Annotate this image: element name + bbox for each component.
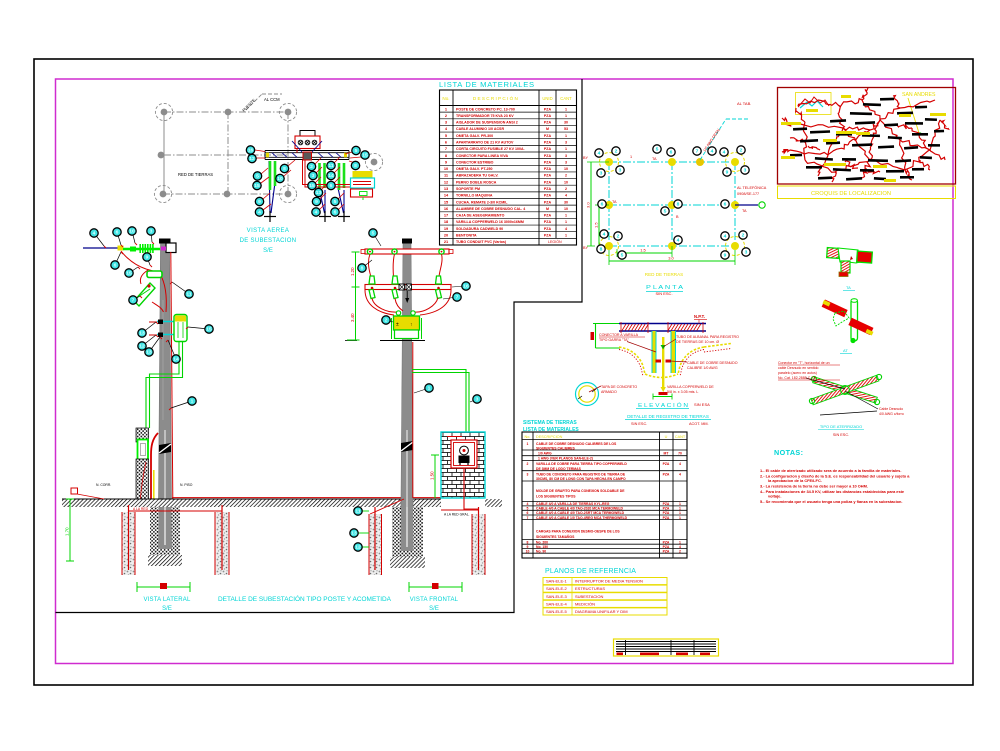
- svg-text:PZA: PZA: [544, 220, 552, 224]
- svg-text:8: 8: [354, 163, 357, 169]
- svg-text:TUBO CONDUIT PVC (Varios): TUBO CONDUIT PVC (Varios): [456, 240, 507, 244]
- svg-text:1.5: 1.5: [640, 248, 646, 253]
- svg-text:1: 1: [565, 114, 567, 118]
- svg-text:SIN ESC.: SIN ESC.: [833, 433, 849, 437]
- svg-text:1: 1: [630, 155, 632, 159]
- svg-text:30: 30: [564, 121, 568, 125]
- svg-text:3.40: 3.40: [350, 313, 355, 322]
- svg-text:7: 7: [445, 146, 447, 151]
- svg-text:2: 2: [742, 233, 745, 239]
- svg-text:TA: TA: [652, 157, 657, 161]
- svg-text:14: 14: [328, 173, 334, 179]
- svg-text:CABLE 4/0 A CABLE 1/0 TAO-4REG: CABLE 4/0 A CABLE 1/0 TAO-4REG MCA THERM…: [536, 516, 628, 520]
- svg-text:S/E: S/E: [429, 606, 439, 612]
- svg-text:ACOT. MM.: ACOT. MM.: [689, 422, 709, 426]
- svg-text:PZA: PZA: [544, 174, 552, 178]
- svg-text:No.: No.: [525, 435, 531, 439]
- svg-text:5: 5: [527, 507, 529, 511]
- svg-text:2: 2: [565, 174, 567, 178]
- svg-text:PZA: PZA: [544, 180, 552, 184]
- svg-text:4: 4: [723, 150, 726, 156]
- svg-text:AL TAB.: AL TAB.: [737, 101, 751, 106]
- svg-text:POSTE DE CONCRETO PC. 13-700: POSTE DE CONCRETO PC. 13-700: [456, 107, 515, 111]
- svg-text:4: 4: [603, 232, 606, 238]
- svg-text:2: 2: [527, 462, 529, 466]
- svg-text:10: 10: [564, 167, 568, 171]
- svg-text:PZA: PZA: [663, 516, 670, 520]
- svg-text:No. Cat. 182-2888-C-TB: No. Cat. 182-2888-C-TB: [778, 376, 817, 380]
- svg-text:TORNILLO MAQUINA: TORNILLO MAQUINA: [456, 194, 493, 198]
- svg-text:AISLADOR DE SUSPENSION ANSI 2: AISLADOR DE SUSPENSION ANSI 2: [456, 121, 518, 125]
- svg-text:2: 2: [679, 549, 681, 553]
- svg-text:paralelo (acero en autos): paralelo (acero en autos): [778, 371, 817, 375]
- svg-text:±: ±: [396, 322, 399, 328]
- svg-text:1.5: 1.5: [594, 222, 599, 228]
- svg-text:6: 6: [724, 202, 727, 208]
- svg-text:12: 12: [355, 545, 361, 551]
- svg-text:16: 16: [463, 284, 469, 290]
- svg-text:1 AWG (VER PLANOS SAN-EL: 1 AWG (VER PLANOS SAN-ELE-2): [538, 457, 593, 461]
- svg-text:15: 15: [362, 153, 368, 159]
- svg-text:OMETA GALV. PT-250: OMETA GALV. PT-250: [456, 167, 493, 171]
- svg-text:15: 15: [206, 327, 212, 333]
- svg-text:PZA: PZA: [663, 472, 670, 476]
- svg-text:DE TIERRAS DE 10 cm. Ø: DE TIERRAS DE 10 cm. Ø: [676, 340, 719, 344]
- svg-text:8: 8: [677, 202, 680, 208]
- svg-text:DIAGRAMA UNIFILAR Y DIM: DIAGRAMA UNIFILAR Y DIM: [575, 609, 628, 614]
- svg-text:13: 13: [316, 190, 322, 196]
- svg-text:TA: TA: [612, 200, 617, 204]
- svg-text:PZA: PZA: [544, 234, 552, 238]
- svg-text:2: 2: [385, 318, 388, 324]
- svg-text:1.20: 1.20: [350, 267, 355, 276]
- svg-text:9: 9: [726, 170, 729, 176]
- svg-text:1/0 AWG: 1/0 AWG: [538, 452, 552, 456]
- svg-text:PZA: PZA: [663, 549, 670, 553]
- svg-text:SIN ESA: SIN ESA: [694, 402, 710, 407]
- svg-text:30CMS, 80 CM DE LONG CON TAPA: 30CMS, 80 CM DE LONG CON TAPA HECHA EN C…: [536, 477, 626, 481]
- svg-text:3: 3: [312, 173, 315, 179]
- svg-text:CABLE 4/0 A CABLE 4/0 TAO-2020: CABLE 4/0 A CABLE 4/0 TAO-2020 MCA TERMO…: [536, 507, 624, 511]
- svg-text:TA: TA: [846, 285, 851, 290]
- svg-text:OMETA GALV. PR-300: OMETA GALV. PR-300: [456, 134, 493, 138]
- svg-text:13: 13: [139, 331, 145, 337]
- svg-text:5: 5: [664, 209, 667, 215]
- svg-text:SIGUIENTES TAMAÑOS: SIGUIENTES TAMAÑOS: [536, 534, 575, 539]
- svg-text:PZA: PZA: [544, 121, 552, 125]
- svg-text:VISTA FRONTAL: VISTA FRONTAL: [410, 597, 459, 603]
- svg-text:NOTAS:: NOTAS:: [774, 448, 803, 457]
- svg-text:2: 2: [615, 149, 618, 155]
- svg-text:4: 4: [677, 238, 680, 244]
- svg-text:70: 70: [678, 452, 682, 456]
- svg-text:2: 2: [310, 164, 313, 170]
- svg-text:MEDICIÓN: MEDICIÓN: [575, 601, 595, 606]
- svg-text:1: 1: [679, 507, 681, 511]
- svg-text:10: 10: [564, 207, 568, 211]
- svg-text:4.- Para instalaciones de: 4.- Para instalaciones de 34.5 KV, utili…: [760, 489, 905, 494]
- svg-text:4: 4: [258, 210, 261, 216]
- svg-text:1: 1: [679, 511, 681, 515]
- svg-text:PZA: PZA: [663, 511, 670, 515]
- svg-text:1: 1: [527, 442, 529, 446]
- svg-text:CARGAS PARA CONEXION DESMO-OES: CARGAS PARA CONEXION DESMO-OESPE DE LOS: [536, 530, 620, 534]
- svg-text:8: 8: [361, 266, 364, 272]
- svg-text:No.: No.: [442, 96, 449, 101]
- svg-text:TAPA DE CONCRETO: TAPA DE CONCRETO: [601, 385, 637, 389]
- svg-text:PZA: PZA: [544, 114, 552, 118]
- svg-text:4: 4: [565, 194, 567, 198]
- svg-text:Conector en "T", horizontal de: Conector en "T", horizontal de un: [778, 361, 830, 365]
- svg-text:ABRAZADERA TU GALV.: ABRAZADERA TU GALV.: [456, 174, 498, 178]
- svg-text:6: 6: [527, 511, 529, 515]
- svg-text:MOLDE DE GRAFITO PARA CONEXION: MOLDE DE GRAFITO PARA CONEXION SOLDABLE …: [536, 489, 625, 493]
- svg-text:CONECTOR ESTRIBO: CONECTOR ESTRIBO: [456, 160, 494, 164]
- svg-text:RED DE TIERRAS: RED DE TIERRAS: [645, 272, 683, 277]
- svg-text:CUCHA. REMATE 2-3/0 KCMIL: CUCHA. REMATE 2-3/0 KCMIL: [456, 200, 508, 204]
- svg-text:S/E: S/E: [263, 248, 273, 254]
- svg-text:No. 90: No. 90: [536, 549, 546, 553]
- svg-text:5.- Se recomienda que el: 5.- Se recomienda que el usuario tenga u…: [760, 499, 902, 504]
- svg-text:DESCRIPCION: DESCRIPCION: [536, 435, 563, 439]
- svg-text:1: 1: [679, 502, 681, 506]
- svg-text:7: 7: [456, 295, 459, 301]
- svg-text:3: 3: [150, 229, 153, 235]
- svg-text:1: 1: [565, 234, 567, 238]
- svg-text:CROQUIS DE LOCALIZACION: CROQUIS DE LOCALIZACION: [811, 191, 891, 197]
- svg-text:TRANSFORMADOR 75 KVA 23 KV: TRANSFORMADOR 75 KVA 23 KV: [456, 114, 514, 118]
- svg-text:APARTARRAYO DE 21 KV AUTOV: APARTARRAYO DE 21 KV AUTOV: [456, 141, 514, 145]
- svg-text:4: 4: [527, 502, 529, 506]
- svg-text:1: 1: [565, 220, 567, 224]
- svg-text:5: 5: [334, 199, 337, 205]
- svg-text:4: 4: [315, 210, 318, 216]
- svg-text:↑: ↑: [410, 322, 413, 328]
- svg-text:CANT: CANT: [560, 96, 572, 101]
- svg-text:PZA: PZA: [544, 147, 552, 151]
- svg-text:5: 5: [656, 147, 659, 153]
- svg-text:3: 3: [565, 154, 567, 158]
- svg-text:CABLE 4/0 A CABLE 4/0 TAO-2SRT: CABLE 4/0 A CABLE 4/0 TAO-2SRT MCA TERMO…: [536, 511, 625, 515]
- svg-text:PZA: PZA: [544, 227, 552, 231]
- svg-text:10: 10: [277, 176, 283, 182]
- svg-text:PZA: PZA: [544, 214, 552, 218]
- svg-text:6: 6: [670, 150, 673, 156]
- svg-text:4: 4: [565, 227, 567, 231]
- svg-text:PZA: PZA: [544, 167, 552, 171]
- svg-text:RED DE TIERRAS: RED DE TIERRAS: [178, 172, 213, 177]
- svg-text:BENTONITA: BENTONITA: [456, 234, 477, 238]
- svg-text:1: 1: [565, 134, 567, 138]
- svg-text:10: 10: [444, 166, 448, 171]
- svg-text:PZA: PZA: [663, 545, 670, 549]
- svg-text:PZA: PZA: [544, 154, 552, 158]
- svg-text:6: 6: [114, 263, 117, 269]
- svg-text:4: 4: [679, 462, 681, 466]
- svg-text:7: 7: [527, 516, 529, 520]
- svg-text:10: 10: [526, 549, 530, 553]
- svg-text:DESCRIPCIÓN: DESCRIPCIÓN: [473, 95, 519, 101]
- svg-text:VARILLA DE COBRE PARA TIERRA T: VARILLA DE COBRE PARA TIERRA TIPO COPPER…: [536, 462, 627, 466]
- svg-text:PZA: PZA: [544, 194, 552, 198]
- svg-text:8: 8: [283, 166, 286, 172]
- svg-text:E L E V A C I Ó N: E L E V A C I Ó N: [638, 402, 688, 409]
- svg-text:CORTA CIRCUITO FUSIBLE 27 KV 1: CORTA CIRCUITO FUSIBLE 27 KV 100A.: [456, 147, 525, 151]
- svg-text:3.- La resistencia de la: 3.- La resistencia de la tierra no debe …: [760, 484, 868, 489]
- svg-text:Cable Desnudo: Cable Desnudo: [879, 407, 903, 411]
- svg-text:3: 3: [476, 397, 479, 403]
- svg-text:13: 13: [351, 531, 357, 537]
- svg-text:LOS SIGUIENTES TIPOS: LOS SIGUIENTES TIPOS: [536, 494, 576, 498]
- svg-text:3.0: 3.0: [668, 256, 674, 261]
- svg-text:CABLE 4/0 A VARILLA DE TIERRAS: CABLE 4/0 A VARILLA DE TIERRAS KYL-REG: [536, 502, 610, 506]
- svg-text:12: 12: [249, 156, 255, 162]
- svg-text:SIGUIENTES CALIBRES: SIGUIENTES CALIBRES: [536, 447, 576, 451]
- svg-text:9: 9: [724, 253, 727, 259]
- svg-text:SUBESTACION: SUBESTACION: [575, 594, 603, 599]
- svg-text:PZA: PZA: [544, 107, 552, 111]
- svg-text:9: 9: [258, 199, 261, 205]
- svg-text:A LA RED: A LA RED: [133, 507, 149, 511]
- svg-text:PZA: PZA: [544, 141, 552, 145]
- svg-text:BY: BY: [583, 246, 589, 250]
- svg-text:CAJA DE ASEGURAMIENTO: CAJA DE ASEGURAMIENTO: [456, 214, 505, 218]
- svg-text:voltaje.: voltaje.: [768, 494, 781, 499]
- svg-text:SAN-ELE-5: SAN-ELE-5: [546, 609, 567, 614]
- svg-text:1: 1: [565, 107, 567, 111]
- svg-text:4: 4: [711, 149, 714, 155]
- svg-text:SAN-ELE-4: SAN-ELE-4: [546, 601, 567, 606]
- svg-text:6: 6: [334, 210, 337, 216]
- svg-text:3.0: 3.0: [586, 202, 591, 208]
- svg-text:No. 200: No. 200: [536, 540, 548, 544]
- svg-text:CANT: CANT: [675, 435, 686, 439]
- svg-text:16: 16: [248, 148, 254, 154]
- svg-text:INTERRUPTOR DE MEDIA TENSIO: INTERRUPTOR DE MEDIA TENSION: [575, 579, 643, 584]
- svg-text:AT: AT: [843, 348, 848, 353]
- svg-text:1.- El cable de aterrizado: 1.- El cable de aterrizado utilizado ser…: [760, 468, 901, 473]
- svg-text:10: 10: [564, 180, 568, 184]
- svg-text:13: 13: [146, 350, 152, 356]
- svg-text:N. PISO: N. PISO: [180, 483, 193, 487]
- svg-text:LISTA DE MATERIALES: LISTA DE MATERIALES: [439, 80, 535, 89]
- svg-text:53: 53: [564, 127, 568, 131]
- svg-text:AL CCM: AL CCM: [264, 97, 280, 102]
- svg-text:SOLDADURA CADWELD 90: SOLDADURA CADWELD 90: [456, 227, 503, 231]
- svg-text:1.50: 1.50: [430, 471, 435, 480]
- svg-text:2: 2: [565, 187, 567, 191]
- svg-text:12: 12: [139, 344, 145, 350]
- svg-text:VISTA AEREA: VISTA AEREA: [247, 228, 290, 234]
- svg-text:4: 4: [724, 234, 727, 240]
- svg-text:2: 2: [617, 234, 620, 240]
- svg-text:TA: TA: [742, 209, 747, 213]
- svg-text:6: 6: [116, 230, 119, 236]
- svg-text:9: 9: [315, 199, 318, 205]
- svg-text:11: 11: [186, 292, 191, 298]
- svg-text:la aprobacion de la CFE/LF: la aprobacion de la CFE/LFC.: [768, 478, 822, 483]
- svg-text:cable Desnudo en sentido: cable Desnudo en sentido: [778, 366, 819, 370]
- svg-text:PZA: PZA: [544, 160, 552, 164]
- svg-text:5: 5: [256, 174, 259, 180]
- svg-text:CALIBRE 1/0 AWG: CALIBRE 1/0 AWG: [687, 366, 718, 370]
- svg-text:11: 11: [355, 509, 360, 515]
- svg-text:ARMADO: ARMADO: [601, 390, 617, 394]
- svg-text:3: 3: [565, 141, 567, 145]
- svg-text:U: U: [665, 435, 668, 439]
- svg-text:CONECTOR PARA LINEA VIVA: CONECTOR PARA LINEA VIVA: [456, 154, 508, 158]
- svg-text:7: 7: [696, 149, 699, 155]
- svg-text:7: 7: [132, 298, 135, 304]
- svg-text:PZA: PZA: [663, 502, 670, 506]
- svg-text:4: 4: [598, 151, 601, 157]
- svg-text:15: 15: [309, 183, 315, 189]
- svg-text:AL TELEFÓNICA: AL TELEFÓNICA: [737, 185, 767, 190]
- svg-text:4: 4: [679, 545, 681, 549]
- svg-text:ALAMBRE DE COBRE DESNUDO CAL.: ALAMBRE DE COBRE DESNUDO CAL. 4: [456, 207, 525, 211]
- svg-text:PZA: PZA: [544, 187, 552, 191]
- svg-text:CABLE DE COBRE DESNUDO: CABLE DE COBRE DESNUDO: [687, 361, 738, 365]
- svg-text:3: 3: [565, 160, 567, 164]
- svg-text:M: M: [546, 127, 549, 131]
- svg-text:30: 30: [564, 200, 568, 204]
- svg-text:0908/SE-177: 0908/SE-177: [737, 192, 759, 196]
- svg-text:15: 15: [254, 183, 260, 189]
- svg-text:PZA: PZA: [544, 200, 552, 204]
- svg-text:11: 11: [328, 163, 333, 169]
- svg-text:3: 3: [619, 168, 622, 174]
- svg-text:SISTEMA DE TIERRAS: SISTEMA DE TIERRAS: [523, 420, 577, 426]
- svg-text:CONECTOR A VARILLA: CONECTOR A VARILLA: [599, 333, 639, 337]
- svg-text:1.70: 1.70: [65, 527, 70, 536]
- svg-text:8: 8: [527, 540, 529, 544]
- svg-text:20: 20: [444, 233, 448, 238]
- svg-text:1: 1: [679, 540, 681, 544]
- svg-text:4/0 AWG c/forro: 4/0 AWG c/forro: [879, 412, 904, 416]
- svg-text:N. CORR.: N. CORR.: [96, 483, 111, 487]
- svg-text:TUBO DE CONCRETO PARA REGISTRO: TUBO DE CONCRETO PARA REGISTRO DE TIERRA…: [536, 472, 626, 476]
- svg-text:DE 3MM DE LODO TERMAS: DE 3MM DE LODO TERMAS: [536, 467, 582, 471]
- svg-text:SIN ESC.: SIN ESC.: [631, 422, 647, 426]
- svg-text:UNID: UNID: [542, 96, 552, 101]
- svg-text:3: 3: [744, 168, 747, 174]
- svg-text:SIN ESC.: SIN ESC.: [655, 291, 672, 296]
- svg-text:VISTA LATERAL: VISTA LATERAL: [143, 597, 191, 603]
- svg-text:2: 2: [740, 148, 743, 154]
- svg-text:PLANOS DE REFERENCIA: PLANOS DE REFERENCIA: [545, 568, 636, 575]
- svg-text:9: 9: [146, 255, 149, 261]
- svg-text:SAN ANDRES: SAN ANDRES: [902, 92, 936, 98]
- svg-text:M: M: [546, 207, 549, 211]
- svg-text:3: 3: [600, 171, 603, 177]
- svg-text:1: 1: [679, 516, 681, 520]
- svg-text:3: 3: [527, 472, 529, 476]
- svg-text:DETALLE DE SUBESTACIÓN TIPO PO: DETALLE DE SUBESTACIÓN TIPO POSTE Y ACOM…: [218, 596, 391, 603]
- svg-text:CABLE ALUMINIO 1/0 ACSR: CABLE ALUMINIO 1/0 ACSR: [456, 127, 504, 131]
- svg-text:BY: BY: [583, 156, 589, 160]
- svg-text:4: 4: [679, 472, 681, 476]
- svg-text:PERNO DOBLE ROSCA: PERNO DOBLE ROSCA: [456, 180, 497, 184]
- svg-text:DE SUBESTACION: DE SUBESTACION: [240, 238, 297, 244]
- svg-text:15: 15: [126, 271, 132, 277]
- svg-text:1: 1: [191, 399, 194, 405]
- svg-text:S/E: S/E: [162, 606, 172, 612]
- svg-text:SAN-ELE-3: SAN-ELE-3: [546, 594, 567, 599]
- svg-text:TIPO GARRA "TA": TIPO GARRA "TA": [599, 338, 630, 342]
- svg-text:1: 1: [428, 386, 431, 392]
- svg-text:6: 6: [601, 202, 604, 208]
- svg-text:SAN-ELE-1: SAN-ELE-1: [546, 579, 567, 584]
- svg-text:ESTRUCTURAS: ESTRUCTURAS: [575, 586, 605, 591]
- svg-text:5: 5: [355, 148, 358, 154]
- svg-text:CABLE DE COBRE DESNUDO CALIBRE: CABLE DE COBRE DESNUDO CALIBRES DE LOS: [536, 442, 617, 446]
- svg-text:SAN-ELE-2: SAN-ELE-2: [546, 586, 567, 591]
- svg-text:9: 9: [527, 545, 529, 549]
- svg-text:PZA: PZA: [544, 134, 552, 138]
- svg-text:A LA RED GRAL.: A LA RED GRAL.: [444, 513, 470, 517]
- svg-text:No. 150: No. 150: [536, 545, 548, 549]
- svg-text:VARILLA COPPERWELD DE: VARILLA COPPERWELD DE: [667, 385, 714, 389]
- svg-text:1: 1: [565, 147, 567, 151]
- svg-text:TIPO DE ATERRIZADO: TIPO DE ATERRIZADO: [820, 424, 862, 429]
- svg-text:4: 4: [93, 231, 96, 237]
- svg-text:VARILLA COPPERWELD 16 3000x16M: VARILLA COPPERWELD 16 3000x16MM: [456, 220, 524, 224]
- svg-text:3: 3: [745, 250, 748, 256]
- svg-text:10: 10: [129, 229, 135, 235]
- svg-text:17: 17: [444, 213, 448, 218]
- svg-text:5: 5: [621, 253, 624, 259]
- svg-text:SOPORTE PM: SOPORTE PM: [456, 187, 480, 191]
- svg-text:PZA: PZA: [663, 540, 670, 544]
- svg-text:6: 6: [330, 183, 333, 189]
- svg-text:14: 14: [173, 357, 179, 363]
- svg-text:PZA: PZA: [663, 507, 670, 511]
- svg-text:5: 5: [372, 231, 375, 237]
- svg-text:1: 1: [565, 214, 567, 218]
- svg-text:N.P.T.: N.P.T.: [694, 314, 705, 319]
- svg-text:PZA: PZA: [663, 462, 670, 466]
- svg-text:8: 8: [600, 247, 603, 253]
- svg-text:DETALLE DE REGISTRO DE TIE: DETALLE DE REGISTRO DE TIERRAS: [627, 414, 709, 419]
- svg-text:5/8 in. x 3.05 mts. L: 5/8 in. x 3.05 mts. L: [667, 390, 698, 394]
- svg-text:TUBO DE ALBANAL PARA REGISTRO: TUBO DE ALBANAL PARA REGISTRO: [676, 335, 739, 339]
- svg-text:LEGIÓN: LEGIÓN: [548, 239, 562, 244]
